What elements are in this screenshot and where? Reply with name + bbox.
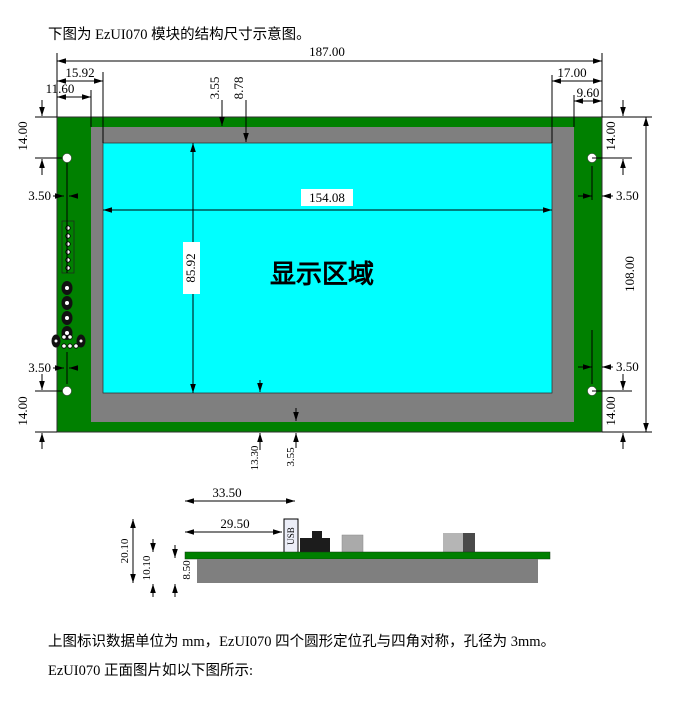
dim-hole-x-top-left: 3.50 <box>28 188 51 203</box>
dim-hole-y-top-right: 14.00 <box>603 121 618 150</box>
dim-usb-right-offset: 33.50 <box>212 485 241 500</box>
display-area-label: 显示区域 <box>270 260 374 289</box>
dim-bottom-bezel-offset: 3.55 <box>285 447 297 467</box>
dim-bottom-display-offset: 13.30 <box>249 445 261 470</box>
dim-display-width: 154.08 <box>309 190 345 205</box>
manual-page: 下图为 EzUI070 模块的结构尺寸示意图。 <box>0 0 688 703</box>
dim-left-display-offset: 15.92 <box>65 65 94 80</box>
dim-panel-thickness: 8.50 <box>181 560 193 580</box>
dim-hole-y-bottom-left: 14.00 <box>15 396 30 425</box>
dim-hole-y-top-left: 14.00 <box>15 121 30 150</box>
dim-usb-left-offset: 29.50 <box>220 516 249 531</box>
dim-top-display-offset: 8.78 <box>231 77 246 100</box>
dim-top-bezel-offset: 3.55 <box>207 77 222 100</box>
dim-hole-x-top-right: 3.50 <box>616 188 639 203</box>
dim-right-display-offset: 17.00 <box>557 65 586 80</box>
dark-component <box>300 538 330 553</box>
unit-note-text: 上图标识数据单位为 mm，EzUI070 四个圆形定位孔与四角对称，孔径为 3m… <box>48 630 555 651</box>
front-view-caption: EzUI070 正面图片如以下图所示: <box>48 659 253 680</box>
hole-top-left <box>63 154 72 163</box>
light-component <box>443 533 463 553</box>
dim-hole-y-bottom-right: 14.00 <box>603 396 618 425</box>
dark-component-top <box>312 531 322 539</box>
panel-side <box>197 559 538 583</box>
dim-hole-x-bottom-right: 3.50 <box>616 359 639 374</box>
dim-right-bezel-offset: 9.60 <box>577 85 600 100</box>
light-component-dark-side <box>463 533 475 553</box>
gray-component <box>342 535 363 553</box>
dimension-diagram: 187.00 15.92 11.60 3.55 8.78 17.00 9.60 … <box>0 0 688 703</box>
dim-display-height: 85.92 <box>183 253 198 282</box>
dim-pcb-panel-thickness: 10.10 <box>141 555 153 580</box>
dim-total-width: 187.00 <box>309 44 345 59</box>
dim-hole-x-bottom-left: 3.50 <box>28 360 51 375</box>
usb-label: USB <box>286 527 296 545</box>
hole-bottom-left <box>63 387 72 396</box>
dim-total-thickness: 20.10 <box>119 538 131 563</box>
dim-left-bezel-offset: 11.60 <box>46 81 75 96</box>
pcb-side <box>185 552 550 559</box>
dim-total-height: 108.00 <box>622 256 637 292</box>
